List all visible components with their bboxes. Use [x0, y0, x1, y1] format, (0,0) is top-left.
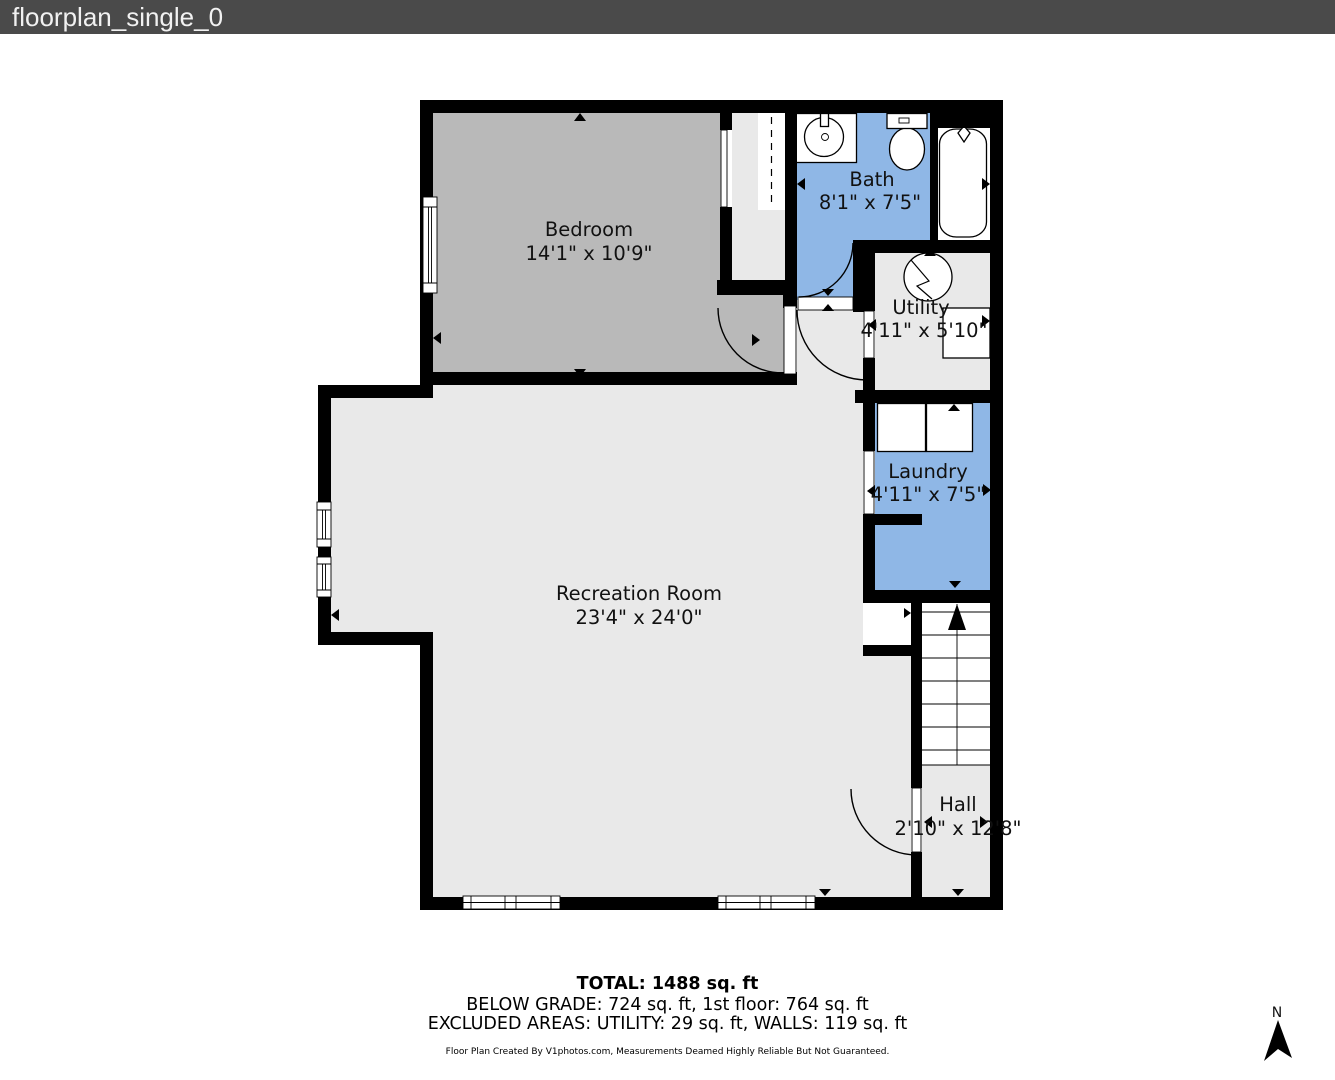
wall-outer-left-lower — [420, 632, 433, 910]
wall-tub-top — [930, 113, 990, 128]
wall-closet-left-nib — [720, 113, 732, 130]
bedroom-name: Bedroom — [545, 218, 633, 241]
summary-excluded: EXCLUDED AREAS: UTILITY: 29 sq. ft, WALL… — [0, 1014, 1335, 1034]
wall-stair-closet-bottom — [863, 645, 913, 656]
wall-laundry-left-b — [863, 514, 875, 600]
recreation-dims: 23'4" x 24'0" — [575, 606, 702, 629]
sink-faucet — [821, 114, 829, 127]
floorplan-drawing: Bedroom 14'1" x 10'9" Bath 8'1" x 7'5" U… — [0, 0, 1335, 1080]
utility-dims: 4'11" x 5'10" — [860, 319, 987, 342]
wall-laundry-bottom — [863, 590, 1003, 603]
wall-utility-left-a — [863, 253, 875, 311]
landing-floor — [797, 310, 863, 390]
wall-tub-left — [930, 113, 938, 243]
washer — [878, 404, 926, 452]
recreation-name: Recreation Room — [556, 582, 722, 605]
hall-name: Hall — [939, 793, 976, 816]
wall-bump-bottom — [318, 632, 431, 645]
wall-outer-top — [420, 100, 1003, 113]
summary-disclaimer: Floor Plan Created By V1photos.com, Meas… — [0, 1047, 1335, 1057]
wall-closet-bath — [785, 113, 797, 295]
summary-below-grade: BELOW GRADE: 724 sq. ft, 1st floor: 764 … — [0, 995, 1335, 1015]
bedroom-door-leaf — [784, 306, 796, 374]
bath-name: Bath — [849, 168, 894, 191]
recreation-floor-right — [863, 656, 911, 897]
window-bedroom-left — [423, 197, 437, 293]
laundry-name: Laundry — [888, 460, 967, 483]
wall-laundry-nib — [863, 514, 922, 525]
stair-closet-floor — [873, 600, 911, 645]
wall-laundry-left-a — [863, 403, 875, 451]
toilet-tank — [887, 114, 927, 129]
window-bottom-right-pair — [718, 896, 815, 909]
summary-total: TOTAL: 1488 sq. ft — [0, 974, 1335, 994]
laundry-dims: 4'11" x 7'5" — [871, 483, 986, 506]
hall-dims: 2'10" x 12'8" — [894, 817, 1021, 840]
closet-slider-door — [721, 130, 727, 207]
window-bump-upper — [317, 502, 331, 547]
recreation-floor-main — [433, 385, 863, 897]
recreation-floor-bump — [331, 398, 433, 632]
bath-dims: 8'1" x 7'5" — [819, 191, 921, 214]
wall-bedroom-bottom — [433, 372, 797, 385]
window-bottom-left-pair — [463, 896, 560, 909]
bedroom-dims: 14'1" x 10'9" — [525, 242, 652, 265]
window-bump-lower — [317, 557, 331, 597]
floorplan-page: floorplan_single_0 — [0, 0, 1335, 1080]
window-title: floorplan_single_0 — [0, 0, 1335, 34]
wall-outer-right — [990, 100, 1003, 910]
wall-closet-left-lower — [720, 207, 732, 282]
wall-stairs-left-b — [911, 852, 922, 897]
wall-bump-top — [318, 385, 433, 398]
bathtub — [940, 129, 987, 237]
wall-stairs-left-a — [911, 590, 922, 788]
bedroom-floor-nook — [720, 293, 785, 373]
utility-name: Utility — [892, 296, 949, 319]
toilet-bowl — [890, 128, 925, 170]
